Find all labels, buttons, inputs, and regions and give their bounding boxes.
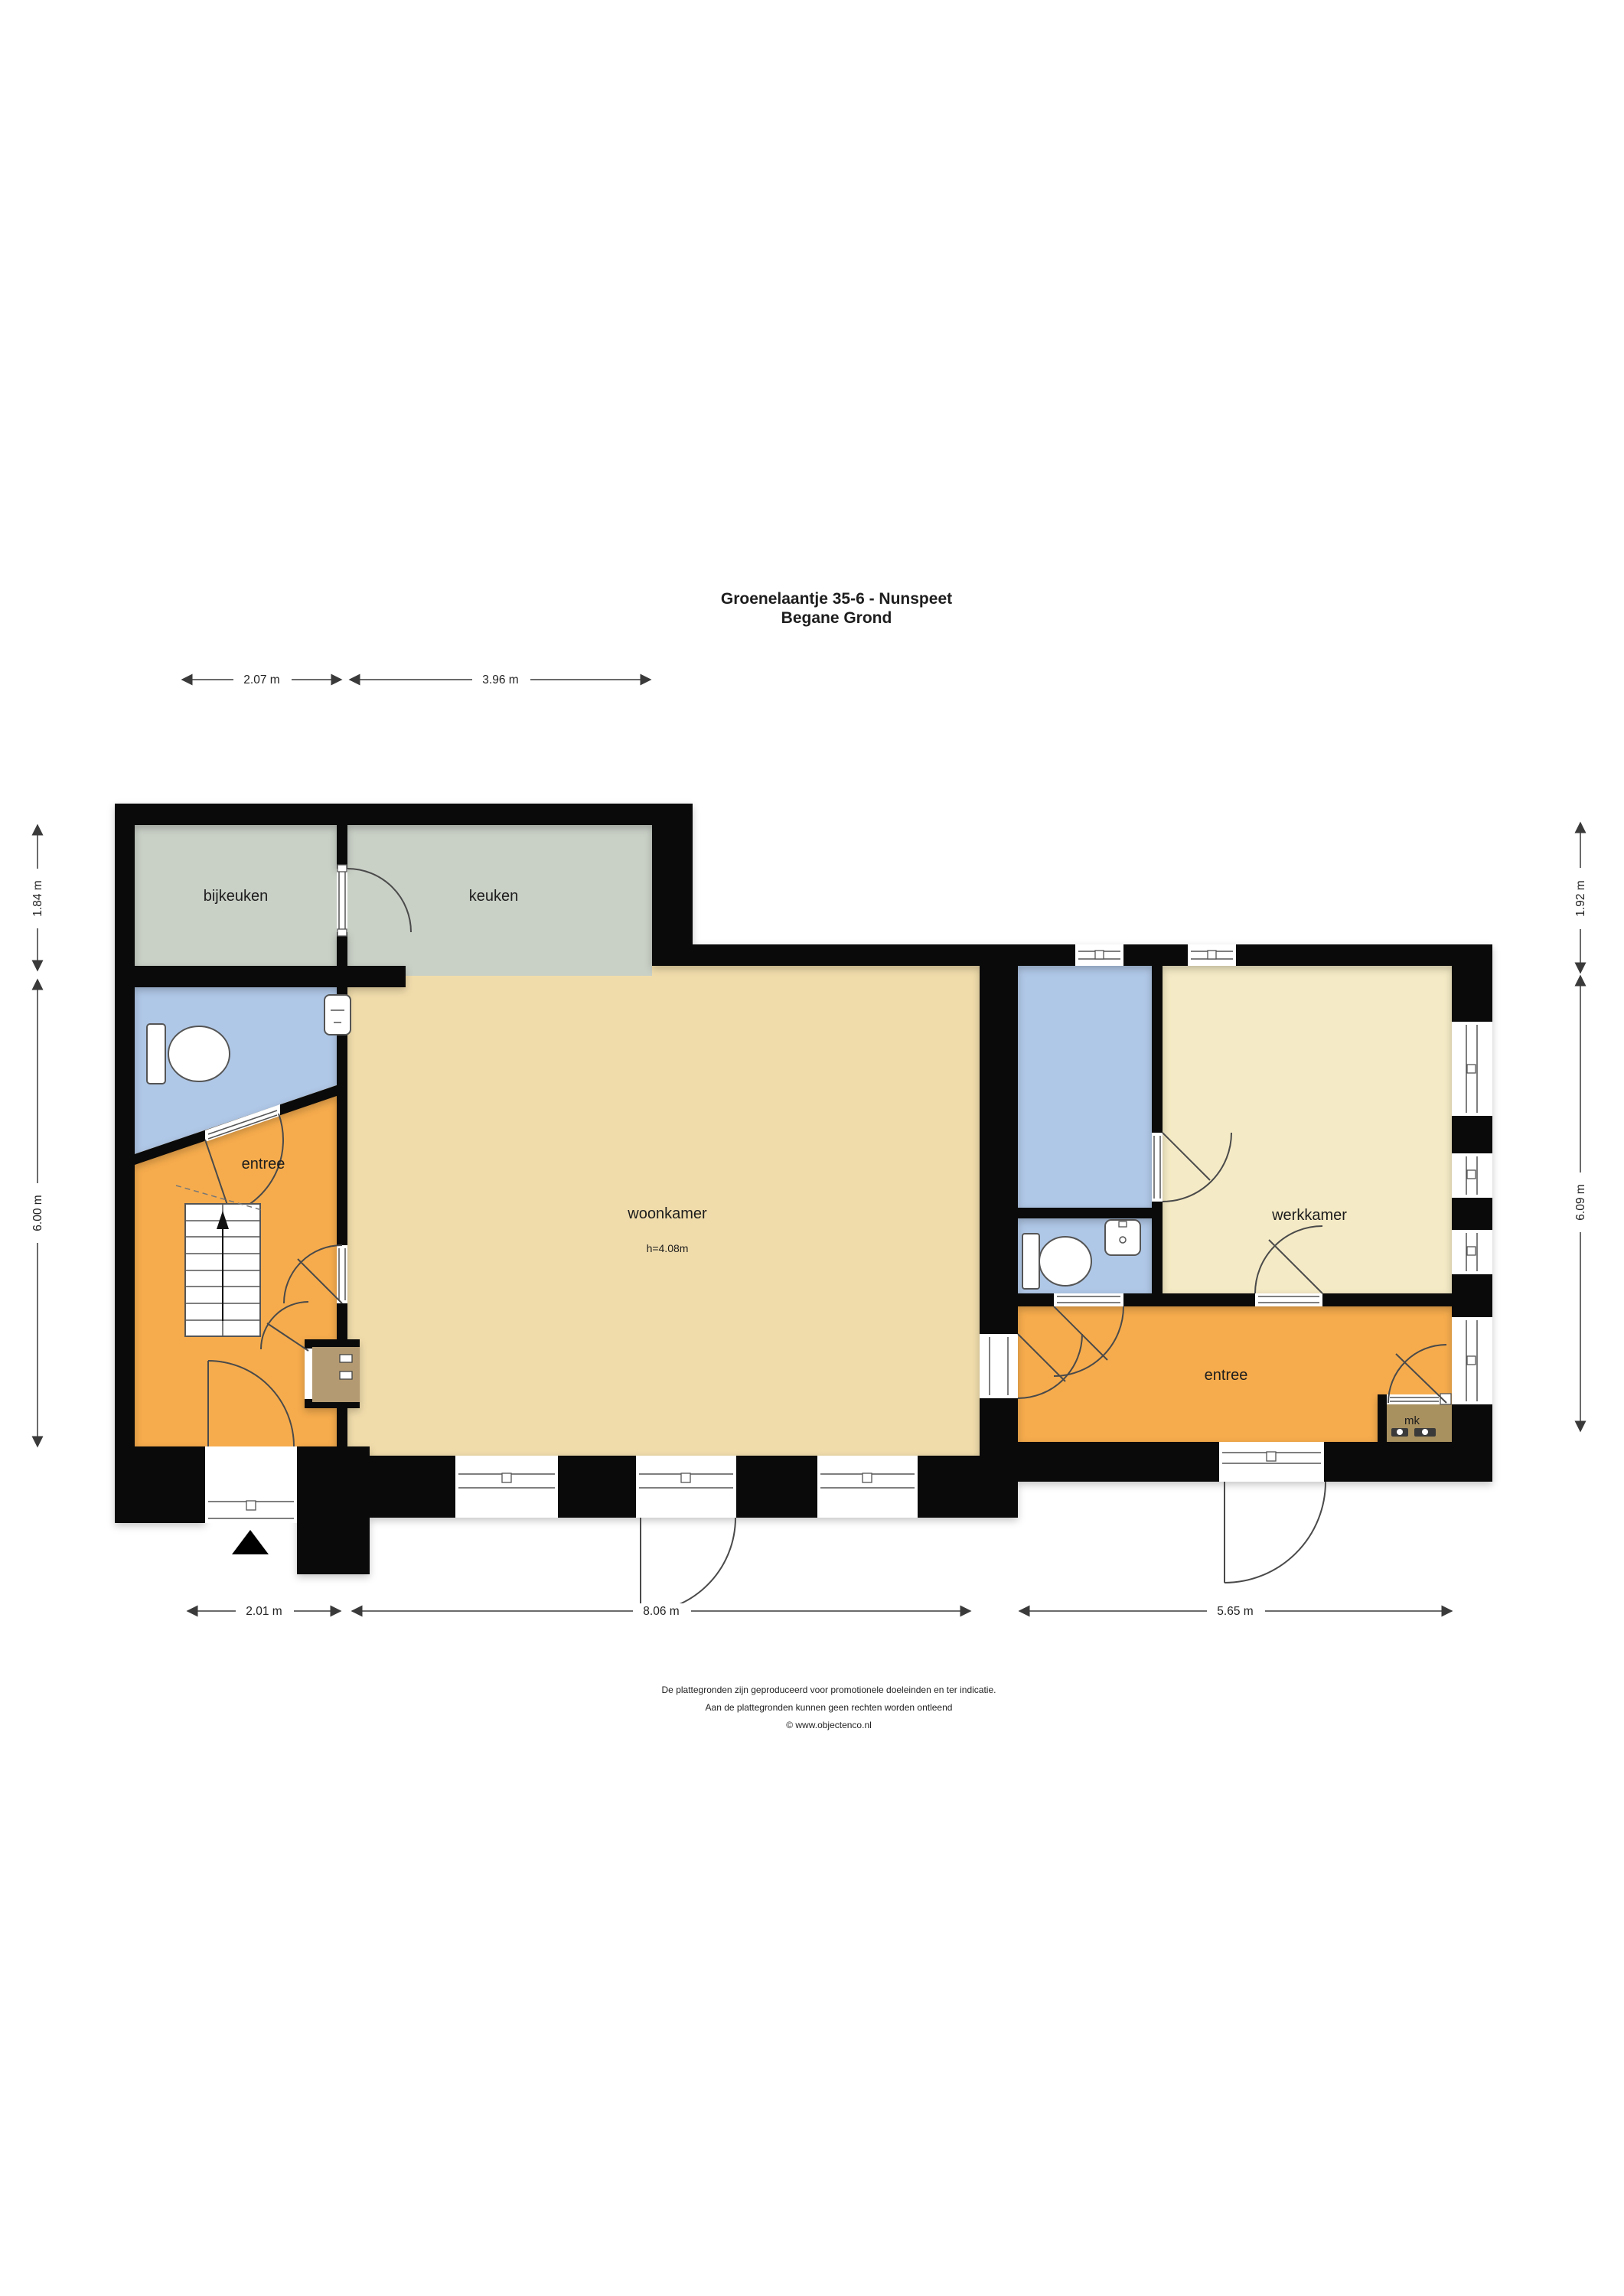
opening-door-toilet-right [1054,1293,1123,1306]
staircase [176,1186,262,1336]
opening-frontdoor-right [1219,1442,1324,1482]
opening-door-woonkamer-entree [980,1334,1018,1398]
label-woonkamer: woonkamer [627,1205,707,1222]
wall-bluehall-bottom [1018,1208,1152,1218]
sink-right-icon [1105,1220,1140,1255]
dim-right-2: 6.09 m [1574,1184,1587,1220]
footer-line-1: De plattegronden zijn geproduceerd voor … [662,1684,996,1695]
wall-bijkeuken-bottom [115,966,406,987]
door-arc-woonkamer-garden [641,1518,735,1613]
opening-door-bottom-woonkamer [636,1456,736,1518]
dim-right-1: 1.92 m [1574,880,1587,916]
wall-keukenblock-right [652,804,693,966]
label-werkkamer: werkkamer [1271,1207,1347,1224]
footer-disclaimer: De plattegronden zijn geproduceerd voor … [662,1684,996,1730]
dim-bottom-2: 8.06 m [643,1605,679,1618]
opening-door-werkkamer [1255,1293,1322,1306]
label-mk: mk [1404,1414,1420,1427]
dim-bottom-1: 2.01 m [246,1605,282,1618]
opening-door-bijkeuken-keuken [337,869,347,932]
dim-bottom-3: 5.65 m [1217,1605,1253,1618]
floorplan-page: Groenelaantje 35-6 - Nunspeet Begane Gro… [0,0,1624,2296]
wall-top-right [652,944,1492,966]
closet-interior [312,1347,360,1402]
dim-top-1: 2.07 m [243,673,279,687]
opening-window-bottom-2 [817,1456,918,1518]
door-arc-frontdoor-right [1225,1482,1326,1583]
opening-door-closet [305,1349,312,1399]
page-subtitle: Begane Grond [781,609,892,627]
opening-door-mk [1387,1394,1442,1404]
floorplan-canvas: Groenelaantje 35-6 - Nunspeet Begane Gro… [0,0,1624,2296]
opening-frontdoor-left [205,1446,297,1523]
footer-line-3: © www.objectenco.nl [786,1720,872,1730]
dim-left-1: 1.84 m [31,880,44,916]
label-entree-left: entree [242,1156,285,1172]
room-blue-hall-floor [1018,966,1152,1208]
label-keuken: keuken [469,888,519,905]
dim-top-2: 3.96 m [482,673,518,687]
room-werkkamer-floor [1163,966,1452,1293]
dim-left-2: 6.00 m [31,1195,44,1231]
opening-door-bluehall [1152,1133,1163,1202]
wall-top [115,804,693,825]
wall-bijkeuken-keuken-b [337,932,347,970]
opening-window-bottom-1 [455,1456,558,1518]
page-title: Groenelaantje 35-6 - Nunspeet [721,590,952,608]
entrance-arrow-icon [232,1530,269,1554]
wall-basin-left-icon [324,995,351,1035]
label-woonkamer-height: h=4.08m [647,1242,689,1254]
label-entree-right: entree [1205,1367,1248,1384]
footer-line-2: Aan de plattegronden kunnen geen rechten… [706,1702,953,1713]
toilet-left-icon [147,1024,230,1084]
toilet-right-icon [1022,1234,1091,1289]
wall-bottom-left-a [135,1446,205,1523]
wall-left [115,804,135,1523]
wall-bluehall-werkkamer [1152,966,1163,1293]
wall-mk-left [1378,1394,1387,1442]
wall-bijkeuken-keuken-a [337,825,347,869]
opening-door-entree-woonkamer [337,1245,347,1303]
label-bijkeuken: bijkeuken [204,888,269,905]
